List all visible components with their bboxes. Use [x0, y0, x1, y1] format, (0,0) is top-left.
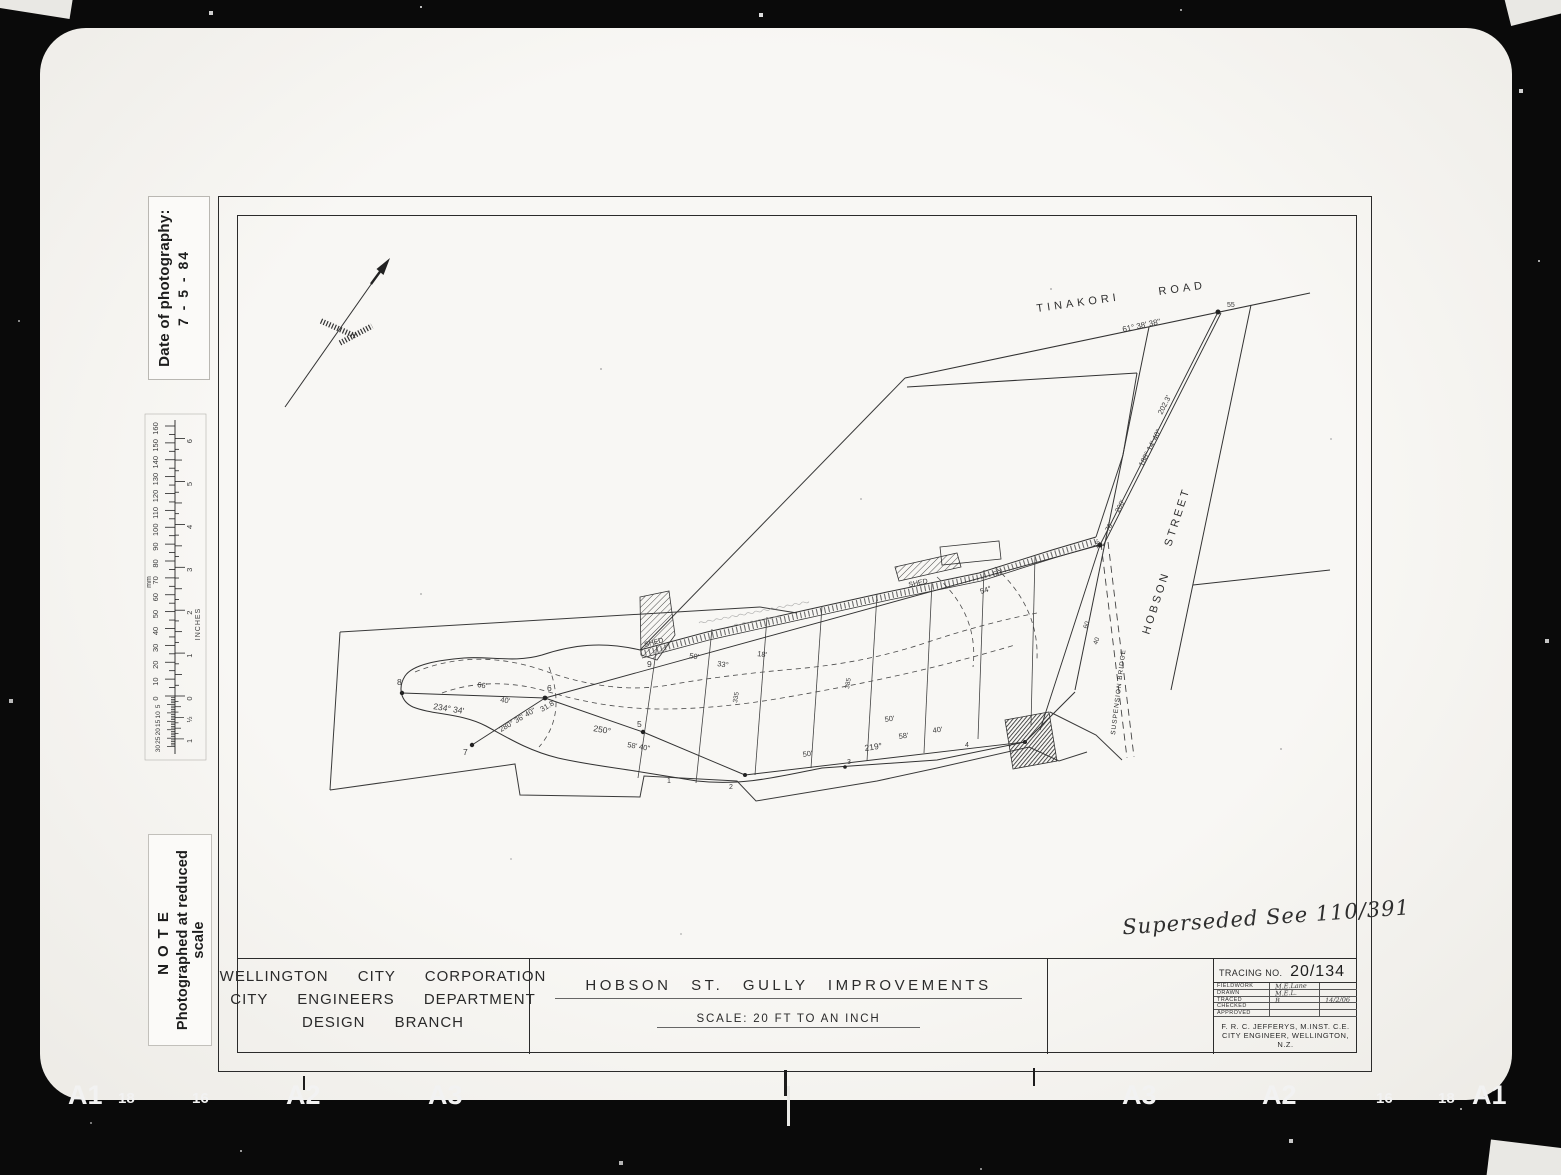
tracing-block: TRACING NO. 20/134 FIELDWORK M.E.Lane DR… [1213, 959, 1357, 1054]
photographic-scale-ruler: 0102030405060708090100110120130140150160… [144, 412, 208, 769]
note-body-text: Photographed at reduced scale [175, 835, 207, 1045]
film-edge-marker: 18 [118, 1090, 135, 1107]
bearing-annotation: 6 [547, 683, 552, 693]
svg-text:30: 30 [155, 745, 162, 753]
film-tear [1503, 0, 1561, 26]
org-line-3: DESIGN BRANCH [302, 1014, 464, 1031]
bearing-annotation: 18' [757, 649, 768, 659]
bearing-annotation: 40' [500, 695, 512, 706]
cross-section-lines [638, 556, 1035, 783]
bearing-annotation: 66' [477, 680, 489, 691]
bearing-annotation: 40' [932, 725, 943, 735]
bearing-annotation: 1 [667, 778, 671, 785]
film-registration-slit [787, 1086, 790, 1126]
approval-value: B [1270, 996, 1319, 1004]
bearing-annotation: 280° 36' 40" [498, 706, 538, 734]
film-edge-marker: A1 [68, 1080, 103, 1111]
svg-text:10: 10 [151, 677, 160, 685]
bearing-annotation: 50' [992, 567, 1005, 579]
bearing-annotation: 219° [864, 741, 883, 753]
bearing-annotation: 70' [1105, 522, 1115, 533]
approval-row-approved: APPROVED [1214, 1010, 1357, 1017]
film-edge-marker: 16 [1376, 1090, 1393, 1107]
photographed-page: Date of photography: 7 - 5 - 84 NOTE Pho… [40, 28, 1512, 1100]
bearing-annotation: 200' [1115, 499, 1127, 514]
approval-label: DRAWN [1214, 990, 1270, 996]
north-arrow-icon [285, 258, 390, 407]
svg-text:30: 30 [151, 644, 160, 652]
bearing-annotation: 5 [637, 719, 642, 729]
org-line-1: WELLINGTON CITY CORPORATION [220, 968, 547, 985]
bearing-annotation: 335 [732, 691, 741, 703]
film-tear [0, 0, 73, 19]
svg-text:1: 1 [187, 739, 194, 743]
road-label: ROAD [1158, 279, 1207, 298]
svg-text:140: 140 [151, 456, 160, 469]
bearing-annotation: 33° [717, 659, 729, 669]
approval-row-checked: CHECKED [1214, 1003, 1357, 1010]
approval-label: CHECKED [1214, 1003, 1270, 1009]
svg-text:10: 10 [155, 711, 162, 719]
svg-text:15: 15 [155, 719, 162, 727]
bearing-annotation: 250° [593, 723, 612, 736]
hobson-street-lines [1075, 305, 1330, 690]
engineer-signature-block: F. R. C. JEFFERYS, M.INST. C.E. CITY ENG… [1214, 1017, 1357, 1049]
ruler-inches-label: INCHES [195, 608, 202, 640]
film-edge-marker: A1 [1472, 1080, 1507, 1111]
tinakori-road-line [905, 293, 1310, 387]
suspension-bridge-label: SUSPENSION BRIDGE [1110, 649, 1127, 736]
bearing-annotation: 58' [898, 731, 909, 741]
bearing-annotation: 385 [844, 677, 853, 689]
svg-text:50: 50 [151, 610, 160, 618]
tracing-label: TRACING NO. [1219, 968, 1282, 978]
svg-text:90: 90 [151, 542, 160, 550]
drawing-title: HOBSON ST. GULLY IMPROVEMENTS [555, 977, 1021, 999]
page-dust [40, 28, 42, 30]
approval-label: APPROVED [1214, 1010, 1270, 1016]
svg-text:100: 100 [151, 523, 160, 536]
date-value-text: 7 - 5 - 84 [175, 197, 191, 379]
svg-text:25: 25 [155, 736, 162, 744]
gully-outline [401, 645, 1075, 782]
bearing-annotations: 61° 38' 38"55188° 14' 40"202.3'200'70'16… [397, 302, 1235, 791]
svg-text:130: 130 [151, 473, 160, 486]
engineer-line-1: F. R. C. JEFFERYS, M.INST. C.E. [1214, 1022, 1357, 1031]
drawing-scale: SCALE: 20 FT TO AN INCH [657, 1013, 921, 1028]
film-frame: Date of photography: 7 - 5 - 84 NOTE Pho… [0, 0, 1561, 1175]
film-edge-marker: 16 [192, 1090, 209, 1107]
svg-text:5: 5 [185, 482, 194, 486]
svg-text:2: 2 [185, 611, 194, 615]
organisation-block: WELLINGTON CITY CORPORATION CITY ENGINEE… [237, 959, 530, 1054]
bearing-annotation: 4 [965, 742, 969, 749]
svg-text:5: 5 [155, 704, 162, 708]
approval-label: TRACED [1214, 997, 1270, 1003]
svg-text:20: 20 [155, 728, 162, 736]
svg-text:6: 6 [185, 439, 194, 443]
approval-extra [1320, 1010, 1357, 1011]
bearing-annotation: 50' [689, 651, 700, 661]
approval-row-traced: TRACED B 14/2/06 [1214, 997, 1357, 1004]
bearing-annotation: 40 [1092, 636, 1101, 646]
bearing-annotation: 61° 38' 38" [1122, 317, 1162, 334]
bearing-annotation: 2 [729, 784, 733, 791]
bearing-annotation: 60 [1082, 620, 1091, 630]
hobson-label: HOBSON [1140, 570, 1172, 636]
pencil-annotation [699, 601, 811, 633]
road-strip-hatched [640, 537, 1098, 658]
approval-extra [1320, 982, 1357, 983]
bearing-annotation: 9 [647, 659, 652, 669]
svg-text:160: 160 [151, 422, 160, 435]
svg-text:40: 40 [151, 627, 160, 635]
bearing-annotation: 58' 40" [627, 740, 651, 753]
street-label: STREET [1162, 486, 1192, 548]
film-edge-marker: A3 [1122, 1080, 1157, 1111]
reduced-scale-note: NOTE Photographed at reduced scale [148, 834, 212, 1046]
bearing-annotation: 234° 34' [433, 701, 466, 716]
svg-text:150: 150 [151, 439, 160, 452]
bearing-annotation: 50' [884, 714, 895, 724]
date-of-photography-label: Date of photography: 7 - 5 - 84 [148, 196, 210, 380]
film-edge-marker: A2 [286, 1080, 321, 1111]
date-label-text: Date of photography: [156, 197, 173, 379]
note-title-text: NOTE [155, 835, 172, 1045]
drawing-title-block: HOBSON ST. GULLY IMPROVEMENTS SCALE: 20 … [530, 959, 1048, 1054]
title-block: WELLINGTON CITY CORPORATION CITY ENGINEE… [237, 958, 1357, 1053]
bearing-annotation: 8 [397, 677, 402, 687]
svg-text:60: 60 [151, 593, 160, 601]
svg-text:3: 3 [185, 568, 194, 572]
svg-text:0: 0 [185, 696, 194, 700]
registration-tick [1033, 1068, 1035, 1086]
engineer-line-2: CITY ENGINEER, WELLINGTON, N.Z. [1214, 1031, 1357, 1049]
bearing-annotation: 54° [979, 584, 993, 596]
tracing-number: 20/134 [1290, 963, 1353, 981]
bearing-annotation: 55 [1227, 302, 1235, 309]
svg-text:1: 1 [185, 654, 194, 658]
ruler-mm-label: mm [146, 576, 153, 588]
film-edge-marker: A3 [428, 1080, 463, 1111]
bearing-annotation: 7 [463, 747, 468, 757]
bearing-annotation: 3 [847, 759, 851, 766]
tinakori-label: TINAKORI [1036, 291, 1121, 315]
film-edge-marker: A2 [1262, 1080, 1297, 1111]
svg-text:0: 0 [151, 696, 160, 700]
org-line-2: CITY ENGINEERS DEPARTMENT [230, 991, 536, 1008]
approval-label: FIELDWORK [1214, 983, 1270, 989]
svg-text:80: 80 [151, 559, 160, 567]
svg-text:½: ½ [186, 716, 194, 722]
bearing-annotation: 188° 14' 40" [1137, 427, 1164, 467]
svg-text:4: 4 [185, 525, 194, 529]
tracing-number-row: TRACING NO. 20/134 [1214, 959, 1357, 983]
svg-text:20: 20 [151, 661, 160, 669]
approval-extra [1320, 989, 1357, 990]
approval-value [1270, 1009, 1319, 1011]
film-tear [1486, 1139, 1561, 1175]
bearing-annotation: 50' [802, 749, 813, 759]
film-edge-marker: 18 [1438, 1090, 1455, 1107]
svg-text:120: 120 [151, 490, 160, 503]
svg-text:110: 110 [151, 507, 160, 519]
approval-extra: 14/2/06 [1320, 996, 1357, 1003]
